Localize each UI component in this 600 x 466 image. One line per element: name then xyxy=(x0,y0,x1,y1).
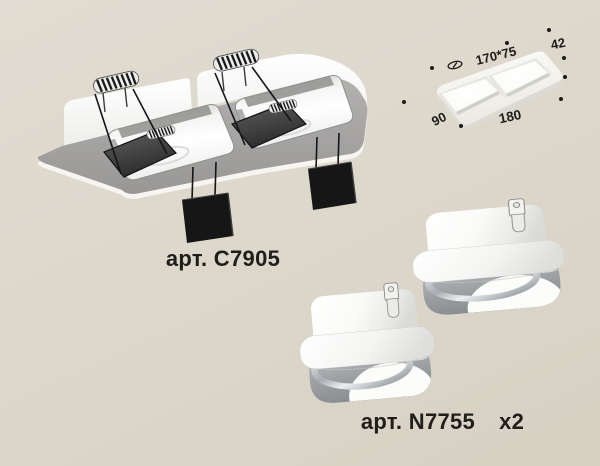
cutout-hole-icon xyxy=(447,60,462,70)
height-label: 42 xyxy=(549,35,566,53)
insert-qty-label: x2 xyxy=(499,409,524,435)
dimension-diagram: 170*75 42 90 180 xyxy=(402,28,567,130)
product-collage-art: 170*75 42 90 180 xyxy=(0,0,600,466)
front-width-label: 180 xyxy=(497,107,522,126)
insert-product-render-back xyxy=(408,195,571,344)
frame-product-render xyxy=(38,48,367,243)
frame-sku-caption: арт. C7905 xyxy=(108,246,338,272)
product-collage: 170*75 42 90 180 арт. C7905 арт. N7755 x… xyxy=(0,0,600,466)
insert-sku-text: арт. N7755 xyxy=(361,409,475,435)
side-width-label: 90 xyxy=(429,109,449,129)
insert-sku-caption: арт. N7755 x2 xyxy=(330,409,555,435)
